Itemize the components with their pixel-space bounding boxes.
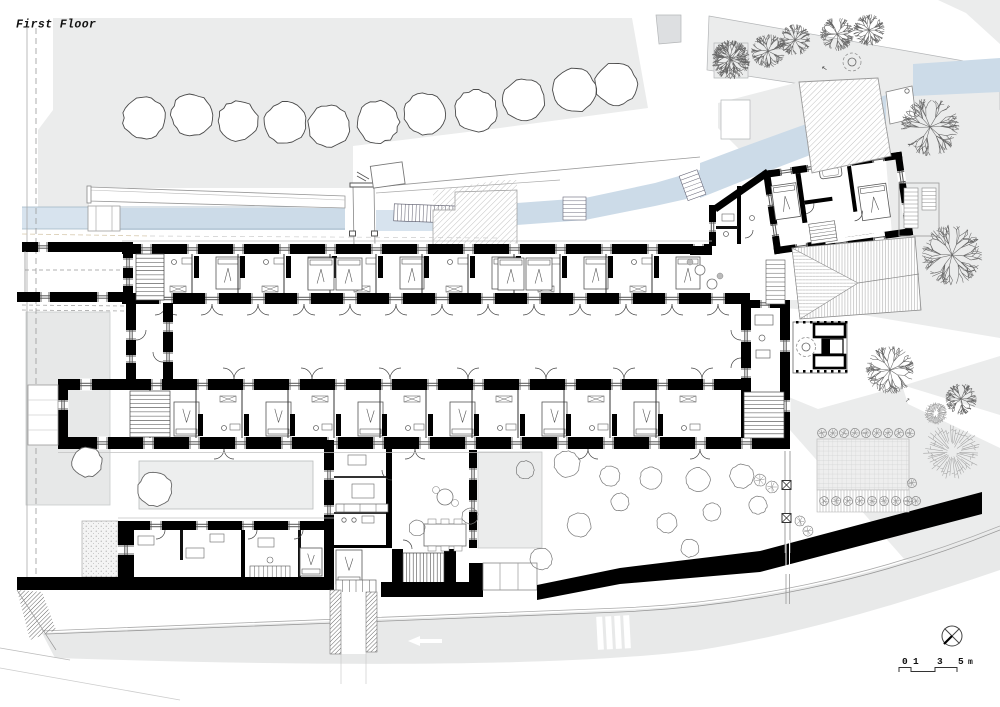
svg-text:0: 0	[902, 656, 908, 667]
svg-text:m: m	[968, 658, 973, 667]
svg-text:5: 5	[958, 656, 964, 667]
svg-text:3: 3	[937, 656, 943, 667]
svg-text:↗: ↗	[905, 398, 910, 404]
svg-text:First Floor: First Floor	[16, 19, 96, 32]
svg-text:1: 1	[913, 656, 919, 667]
svg-text:↖: ↖	[821, 65, 828, 73]
